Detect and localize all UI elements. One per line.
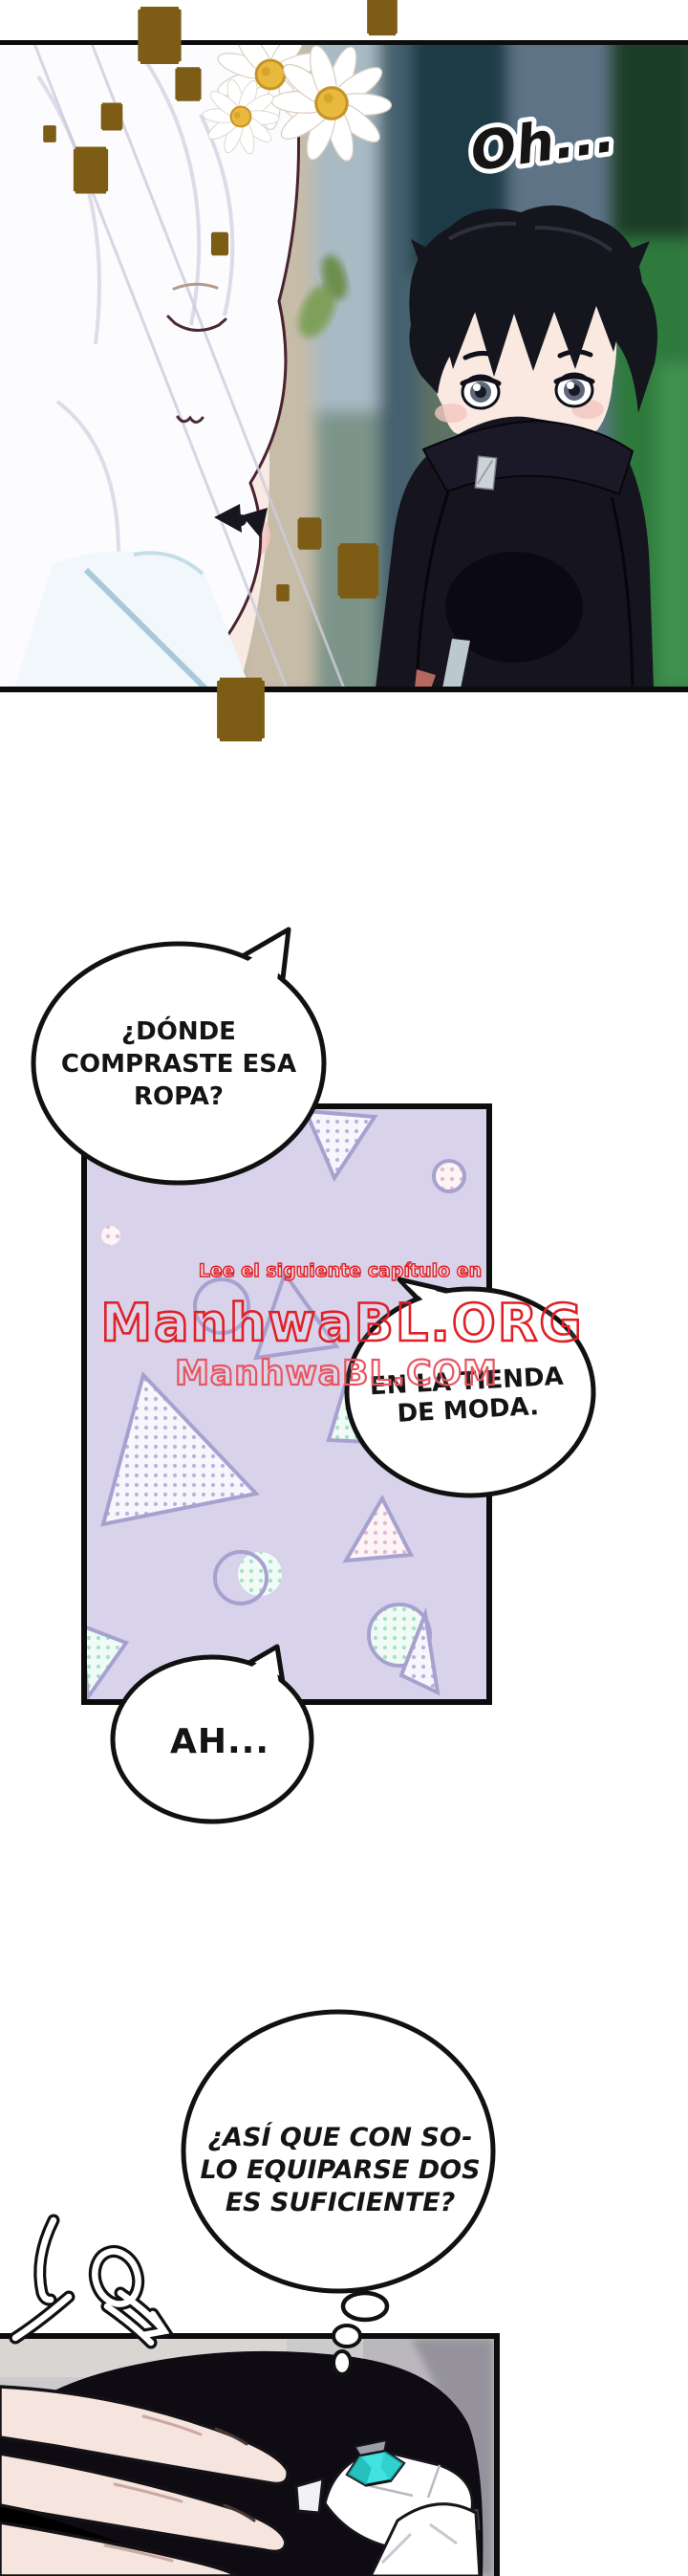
speech-line: ¿ASÍ QUE CON SO- — [200, 2122, 480, 2154]
speech-line: ROPA? — [61, 1081, 296, 1113]
collar-clasp-icon — [475, 456, 496, 490]
watermark-site-com: ManhwaBL.COM — [175, 1354, 498, 1393]
thought-text-asi: ¿ASÍ QUE CON SO- LO EQUIPARSE DOS ES SUF… — [200, 2122, 480, 2219]
panel-border-right — [494, 2333, 500, 2576]
panel-border-top — [0, 2333, 500, 2339]
speech-line: LO EQUIPARSE DOS — [200, 2154, 480, 2187]
panel-border-bottom — [0, 687, 688, 692]
speech-text-ah: AH... — [170, 1723, 269, 1761]
speech-line: COMPRASTE ESA — [61, 1048, 296, 1081]
sfx-swish-icon — [15, 2220, 164, 2343]
panel-scene: Oh... — [0, 0, 688, 738]
speech-line: ES SUFICIENTE? — [200, 2187, 480, 2219]
watermark-tagline: Lee el siguiente capítulo en — [199, 1260, 482, 1281]
comic-page: Oh... — [0, 0, 688, 2576]
speech-line: ¿DÓNDE — [61, 1015, 296, 1048]
panel-hands — [0, 2333, 500, 2576]
panel-border-top — [0, 40, 688, 45]
watermark-site-org: ManhwaBL.ORG — [100, 1293, 583, 1353]
speech-text-donde: ¿DÓNDE COMPRASTE ESA ROPA? — [61, 1015, 296, 1113]
